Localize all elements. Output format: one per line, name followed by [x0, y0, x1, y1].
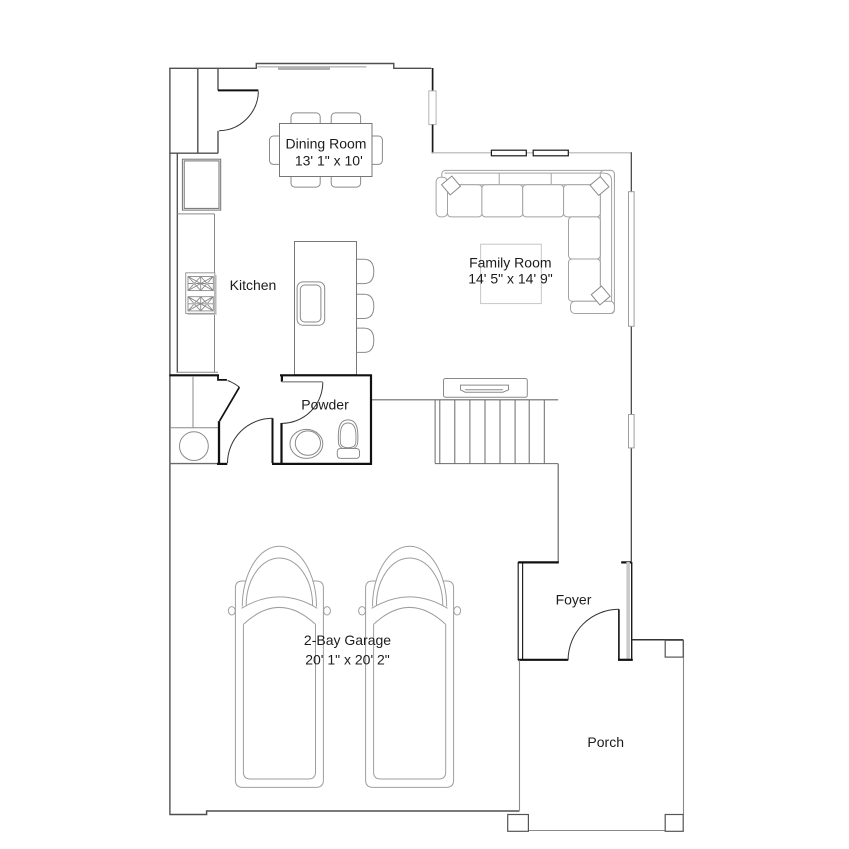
svg-text:Foyer: Foyer: [556, 592, 592, 608]
svg-text:13' 1" x 10': 13' 1" x 10': [295, 152, 363, 168]
svg-text:20' 1" x 20' 2": 20' 1" x 20' 2": [305, 651, 390, 667]
svg-text:Family Room: Family Room: [469, 254, 551, 270]
svg-text:Kitchen: Kitchen: [230, 277, 277, 293]
svg-text:2-Bay Garage: 2-Bay Garage: [304, 632, 391, 648]
svg-text:Dining Room: Dining Room: [286, 135, 367, 151]
svg-text:14' 5" x 14' 9": 14' 5" x 14' 9": [468, 271, 553, 287]
svg-text:Powder: Powder: [301, 396, 349, 412]
svg-text:Porch: Porch: [587, 734, 624, 750]
